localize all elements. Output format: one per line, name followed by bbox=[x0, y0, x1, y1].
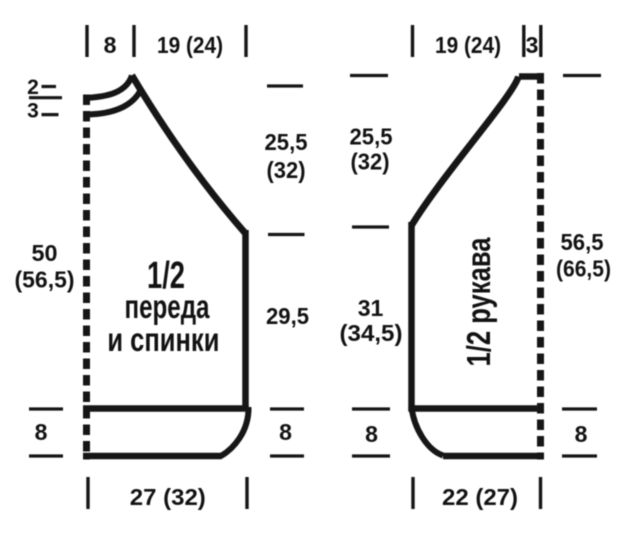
svg-text:8: 8 bbox=[279, 419, 292, 445]
svg-text:3: 3 bbox=[526, 32, 539, 58]
svg-text:50: 50 bbox=[32, 240, 58, 266]
svg-text:переда: переда bbox=[125, 288, 210, 325]
svg-text:и спинки: и спинки bbox=[107, 321, 219, 358]
svg-text:8: 8 bbox=[575, 421, 588, 447]
svg-text:25,5: 25,5 bbox=[265, 129, 308, 155]
svg-text:(34,5): (34,5) bbox=[340, 320, 403, 346]
svg-text:1/2 рукава: 1/2 рукава bbox=[460, 237, 497, 366]
svg-text:8: 8 bbox=[365, 421, 378, 447]
svg-text:56,5: 56,5 bbox=[561, 229, 604, 255]
svg-text:2: 2 bbox=[27, 76, 39, 99]
svg-text:(66,5): (66,5) bbox=[556, 256, 611, 282]
svg-text:29,5: 29,5 bbox=[266, 303, 309, 329]
svg-text:3: 3 bbox=[27, 100, 39, 123]
svg-text:19 (24): 19 (24) bbox=[157, 32, 223, 58]
svg-text:8: 8 bbox=[104, 32, 117, 58]
svg-text:(32): (32) bbox=[351, 149, 390, 175]
svg-text:27 (32): 27 (32) bbox=[130, 484, 206, 510]
svg-text:31: 31 bbox=[358, 295, 384, 321]
svg-text:25,5: 25,5 bbox=[350, 124, 393, 150]
svg-text:19 (24): 19 (24) bbox=[435, 32, 501, 58]
svg-text:(32): (32) bbox=[267, 157, 306, 183]
svg-text:8: 8 bbox=[35, 419, 48, 445]
svg-text:22 (27): 22 (27) bbox=[442, 484, 518, 510]
svg-text:(56,5): (56,5) bbox=[15, 267, 75, 293]
